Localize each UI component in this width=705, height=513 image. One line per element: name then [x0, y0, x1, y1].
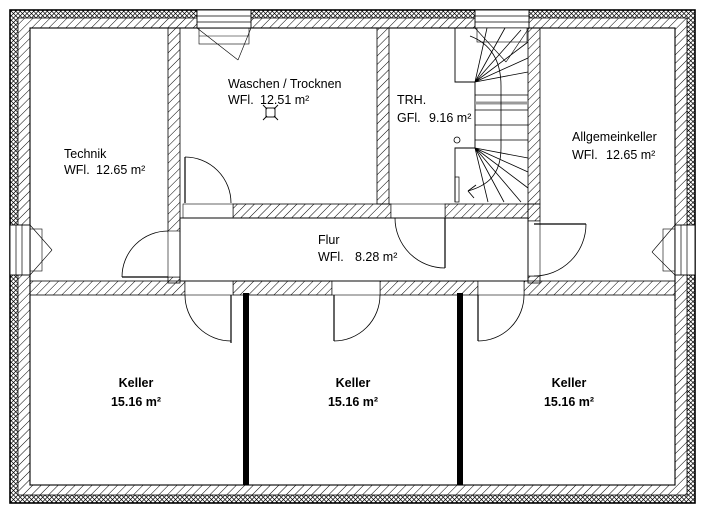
wall-flur-south-d: [524, 281, 675, 295]
room-area-label: WFl.: [228, 93, 254, 107]
wall-flur-south-b: [233, 281, 332, 295]
floor-plan: Technik WFl. 12.65 m² Waschen / Trocknen…: [0, 0, 705, 513]
room-name: Allgemeinkeller: [572, 130, 657, 144]
room-area-value: 15.16 m²: [544, 395, 594, 409]
wall-keller2-keller3: [457, 293, 463, 485]
floor-plan-drawing: Technik WFl. 12.65 m² Waschen / Trocknen…: [0, 0, 705, 513]
wall-stair-allgemeinkeller: [528, 28, 540, 204]
room-name: Keller: [552, 376, 587, 390]
wall-flur-north-a: [233, 204, 391, 218]
room-name: TRH.: [397, 93, 426, 107]
room-name: Keller: [119, 376, 154, 390]
room-name: Keller: [336, 376, 371, 390]
room-name: Flur: [318, 233, 340, 247]
wall-flur-south-c: [380, 281, 478, 295]
wall-technik-east: [168, 28, 180, 232]
room-area-value: 9.16 m²: [429, 111, 471, 125]
wall-flur-north-b: [445, 204, 528, 218]
room-name: Waschen / Trocknen: [228, 77, 342, 91]
wall-keller1-keller2: [243, 293, 249, 485]
opening-keller2: [332, 281, 380, 295]
wall-waschen-trh: [377, 28, 389, 204]
room-area-label: GFl.: [397, 111, 421, 125]
room-area-label: WFl.: [572, 148, 598, 162]
room-area-label: WFl.: [64, 163, 90, 177]
canvas-background: [0, 0, 705, 513]
opening-keller1: [185, 281, 233, 295]
wall-allg-stub-top: [528, 204, 540, 221]
room-area-value: 15.16 m²: [328, 395, 378, 409]
room-area-value: 12.51 m²: [260, 93, 309, 107]
room-area-value: 12.65 m²: [606, 148, 655, 162]
opening-keller3: [478, 281, 524, 295]
opening-trh: [391, 204, 445, 218]
opening-waschen: [183, 204, 233, 218]
room-area-value: 12.65 m²: [96, 163, 145, 177]
opening-allgemeinkeller: [528, 221, 540, 276]
opening-technik: [168, 231, 180, 277]
wall-flur-south-a: [30, 281, 185, 295]
room-area-value: 8.28 m²: [355, 250, 397, 264]
room-name: Technik: [64, 147, 107, 161]
room-area-label: WFl.: [318, 250, 344, 264]
room-area-value: 15.16 m²: [111, 395, 161, 409]
